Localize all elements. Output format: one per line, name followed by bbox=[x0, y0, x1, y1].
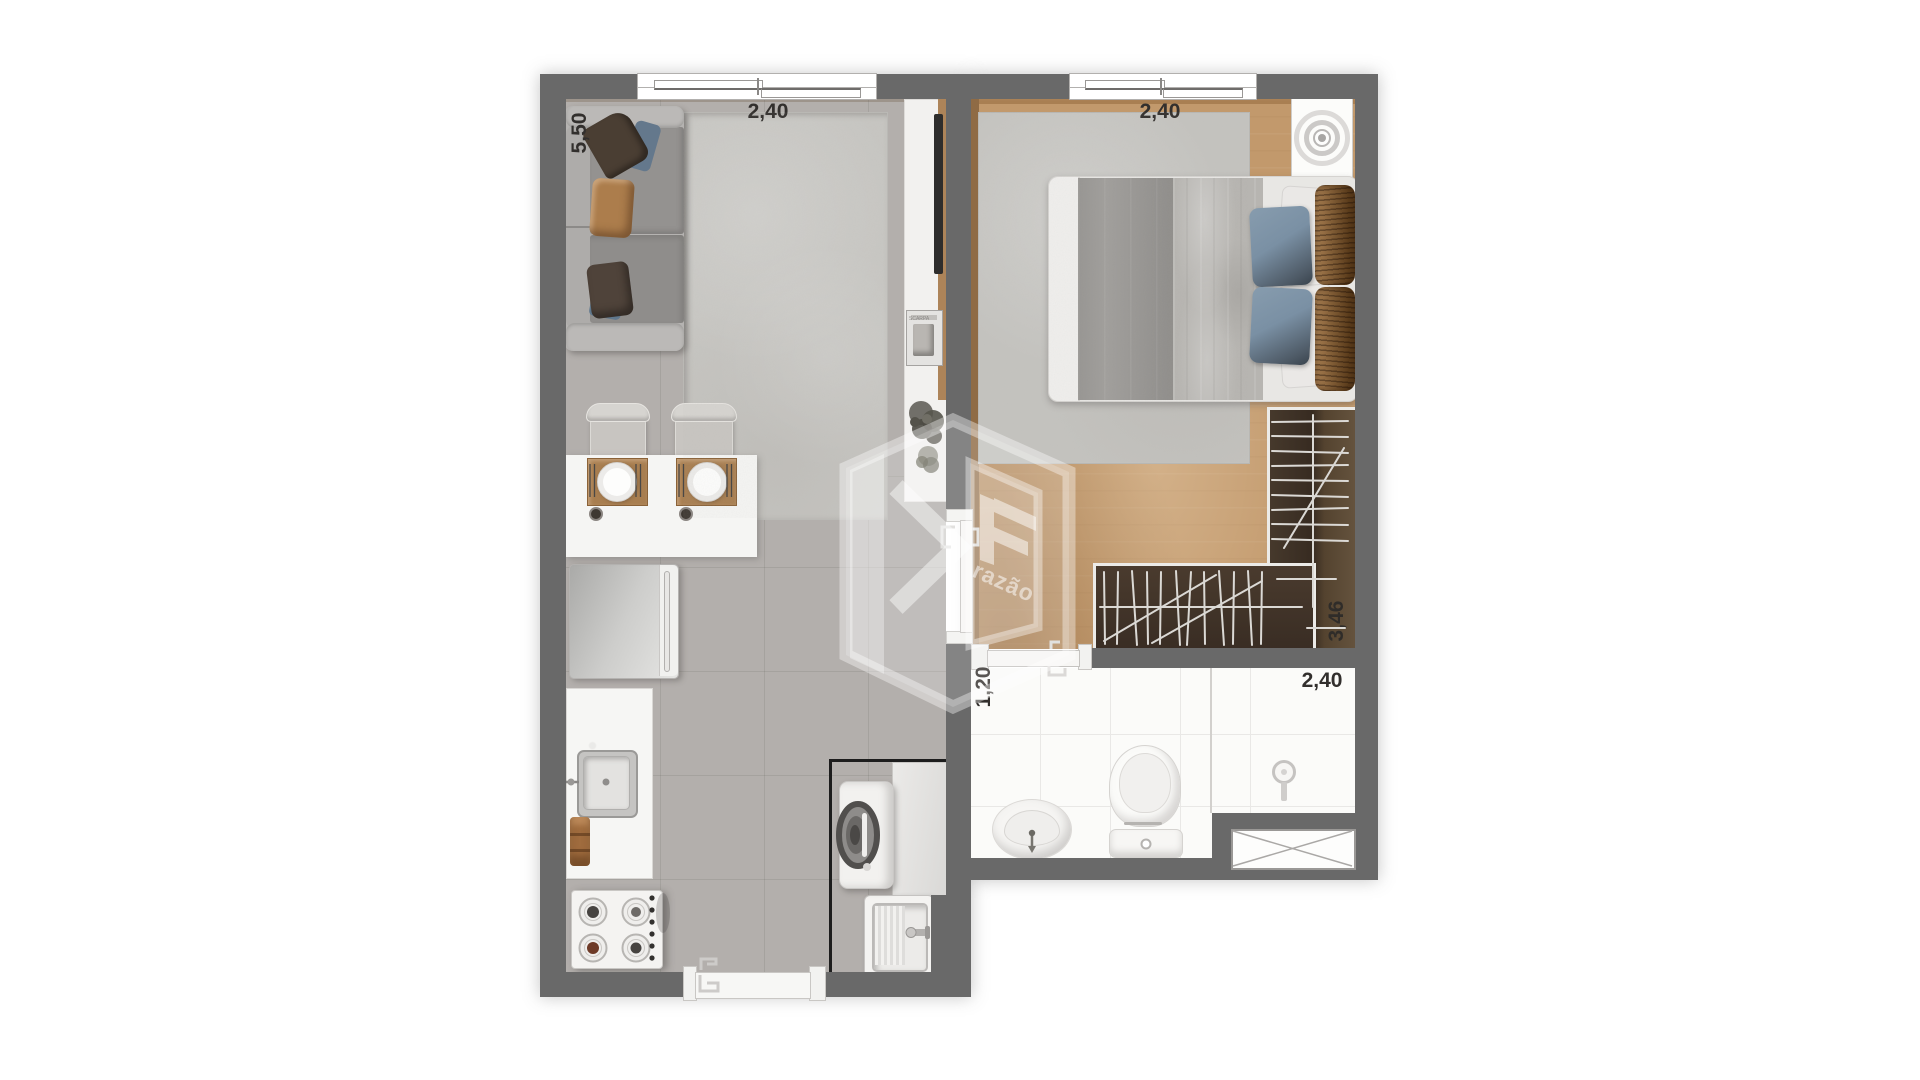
svg-text:SCARPA: SCARPA bbox=[909, 316, 930, 322]
